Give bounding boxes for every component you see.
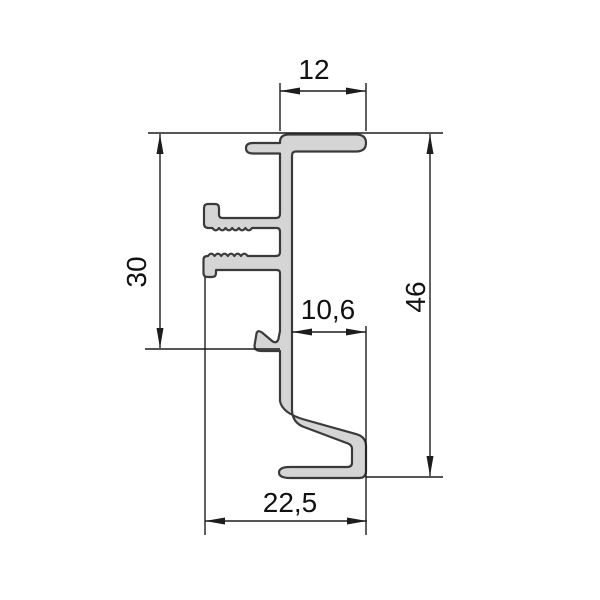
arrowhead-down-icon — [157, 328, 164, 348]
dimension-top-flange-width: 12 — [280, 54, 366, 95]
dim-label-overall-height: 46 — [400, 281, 431, 312]
arrowhead-up-icon — [427, 134, 434, 154]
arrowhead-left-icon — [280, 88, 300, 95]
arrowhead-right-icon — [347, 518, 367, 525]
technical-drawing: 12 30 10,6 46 22,5 — [0, 0, 600, 600]
arrowhead-right-icon — [346, 88, 366, 95]
dim-label-left-height: 30 — [121, 256, 152, 287]
arrowhead-left-icon — [292, 329, 312, 336]
dim-label-bottom-width: 22,5 — [263, 487, 318, 518]
dimension-left-height: 30 — [121, 134, 164, 348]
drawing-canvas: 12 30 10,6 46 22,5 — [0, 0, 600, 600]
dimension-overall-height: 46 — [400, 134, 434, 476]
dim-label-inner-width: 10,6 — [301, 294, 356, 325]
dimension-inner-width: 10,6 — [292, 294, 366, 336]
dim-label-top-flange-width: 12 — [298, 54, 329, 85]
arrowhead-down-icon — [427, 456, 434, 476]
dimension-bottom-width: 22,5 — [205, 487, 367, 525]
arrowhead-up-icon — [157, 134, 164, 154]
arrowhead-left-icon — [205, 518, 225, 525]
arrowhead-right-icon — [346, 329, 366, 336]
